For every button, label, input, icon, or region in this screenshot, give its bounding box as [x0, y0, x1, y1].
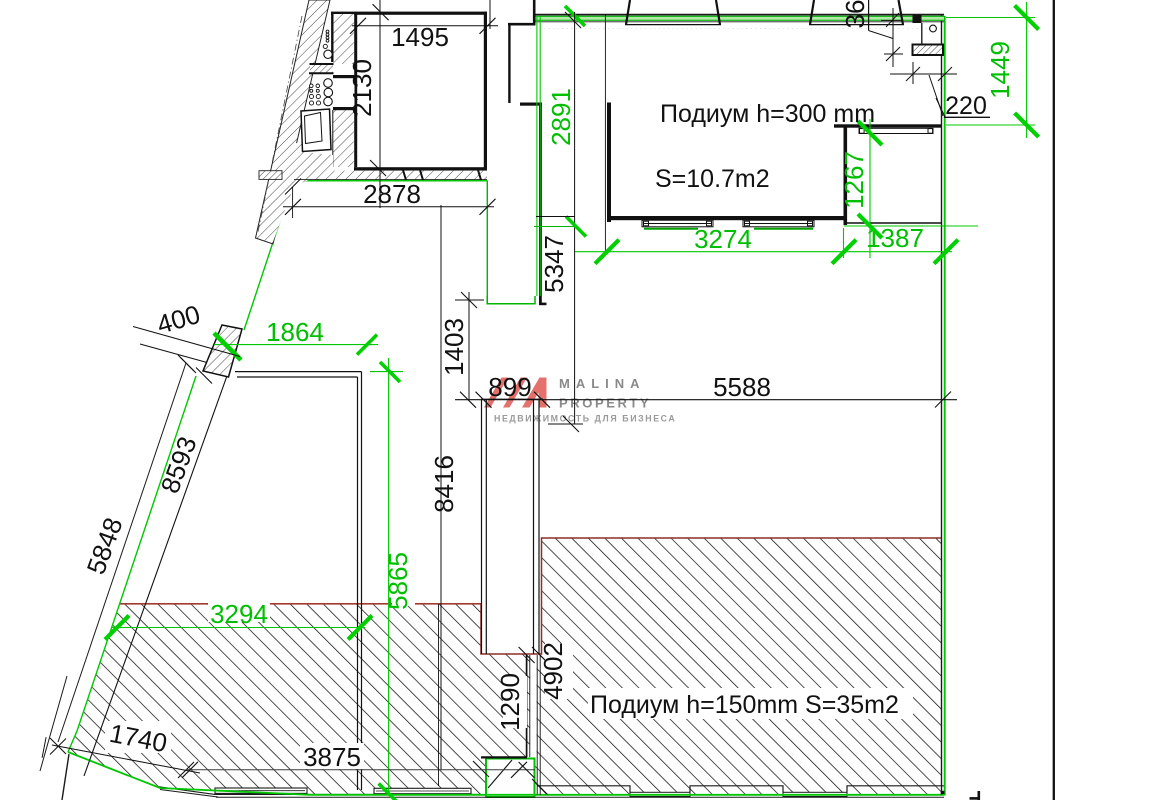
svg-text:2891: 2891: [546, 88, 576, 146]
svg-text:НЕДВИЖИМОСТЬ ДЛЯ БИЗНЕСА: НЕДВИЖИМОСТЬ ДЛЯ БИЗНЕСА: [494, 414, 676, 424]
svg-text:5588: 5588: [713, 372, 771, 402]
svg-text:PROPERTY: PROPERTY: [559, 396, 651, 411]
svg-text:5848: 5848: [81, 514, 129, 579]
svg-text:1387: 1387: [866, 223, 924, 253]
svg-text:1495: 1495: [391, 22, 449, 52]
svg-text:4902: 4902: [538, 642, 568, 700]
svg-text:S=10.7m2: S=10.7m2: [655, 165, 770, 193]
svg-text:1449: 1449: [985, 41, 1015, 99]
svg-text:2130: 2130: [347, 59, 377, 117]
svg-text:36: 36: [840, 0, 870, 28]
svg-text:1290: 1290: [495, 673, 525, 731]
svg-text:5865: 5865: [383, 552, 413, 610]
svg-text:Подиум h=150mm S=35m2: Подиум h=150mm S=35m2: [590, 691, 899, 719]
svg-text:400: 400: [154, 299, 204, 340]
svg-text:3274: 3274: [694, 224, 752, 254]
svg-text:5347: 5347: [539, 235, 569, 293]
svg-text:8416: 8416: [429, 455, 459, 513]
svg-text:899: 899: [488, 372, 531, 402]
svg-text:1403: 1403: [439, 318, 469, 376]
svg-text:MALINA: MALINA: [559, 376, 646, 391]
svg-text:1267: 1267: [839, 151, 869, 209]
svg-text:1864: 1864: [266, 317, 324, 347]
svg-text:220: 220: [945, 92, 987, 120]
svg-text:2878: 2878: [363, 179, 421, 209]
svg-text:3875: 3875: [303, 742, 361, 772]
svg-text:3294: 3294: [210, 599, 268, 629]
svg-text:Подиум h=300 mm: Подиум h=300 mm: [660, 100, 875, 128]
